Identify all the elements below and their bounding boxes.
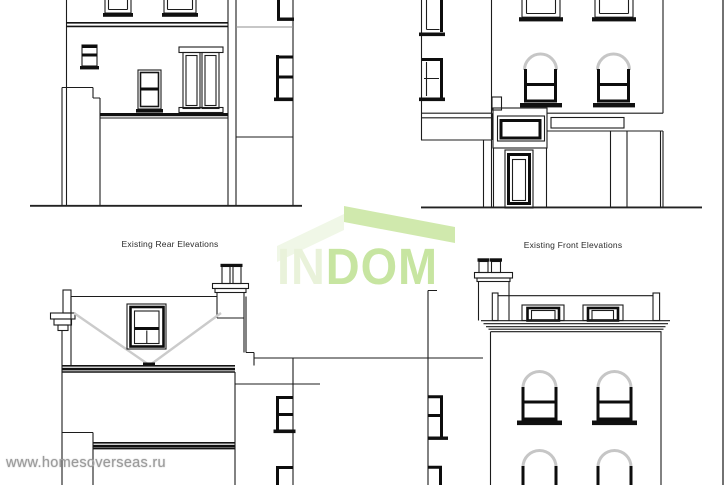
logo-text-dom: DOM [326,238,438,295]
small-window [80,45,99,69]
homesoverseas-url-watermark: www.homesoverseas.ru [6,455,166,471]
front-elevations-title: Existing Front Elevations [524,240,623,250]
elevation-drawing-sheet: INDOM Existing Rear Elevations Existing … [0,0,726,485]
front-elevation-upper-drawing [419,0,702,208]
arched-sash-windows [520,54,635,107]
rear-elevation-lower-drawing [51,264,484,485]
chimney [475,258,513,320]
shopfront [492,97,663,207]
upper-cut-windows [519,0,636,21]
roof-and-dormer [51,290,222,366]
upper-cut-windows [103,0,198,17]
neighbour-windows [274,396,296,485]
middle-window [136,70,163,113]
walls [62,0,293,206]
neighbour-windows [274,0,294,101]
logo-text-in: IN [277,238,326,295]
neighbour-shopfront [419,0,492,207]
parapet-and-dormers [492,293,659,321]
arched-sash-windows [517,372,637,485]
cornice [481,321,670,332]
walls [492,0,664,207]
shop-door [505,150,533,208]
french-doors [179,47,223,113]
rear-elevation-upper-drawing [30,0,302,206]
rear-elevations-title: Existing Rear Elevations [122,239,219,249]
logo-text: INDOM [277,241,438,292]
neighbour-windows [428,396,448,485]
indom-watermark-logo: INDOM [270,200,470,295]
